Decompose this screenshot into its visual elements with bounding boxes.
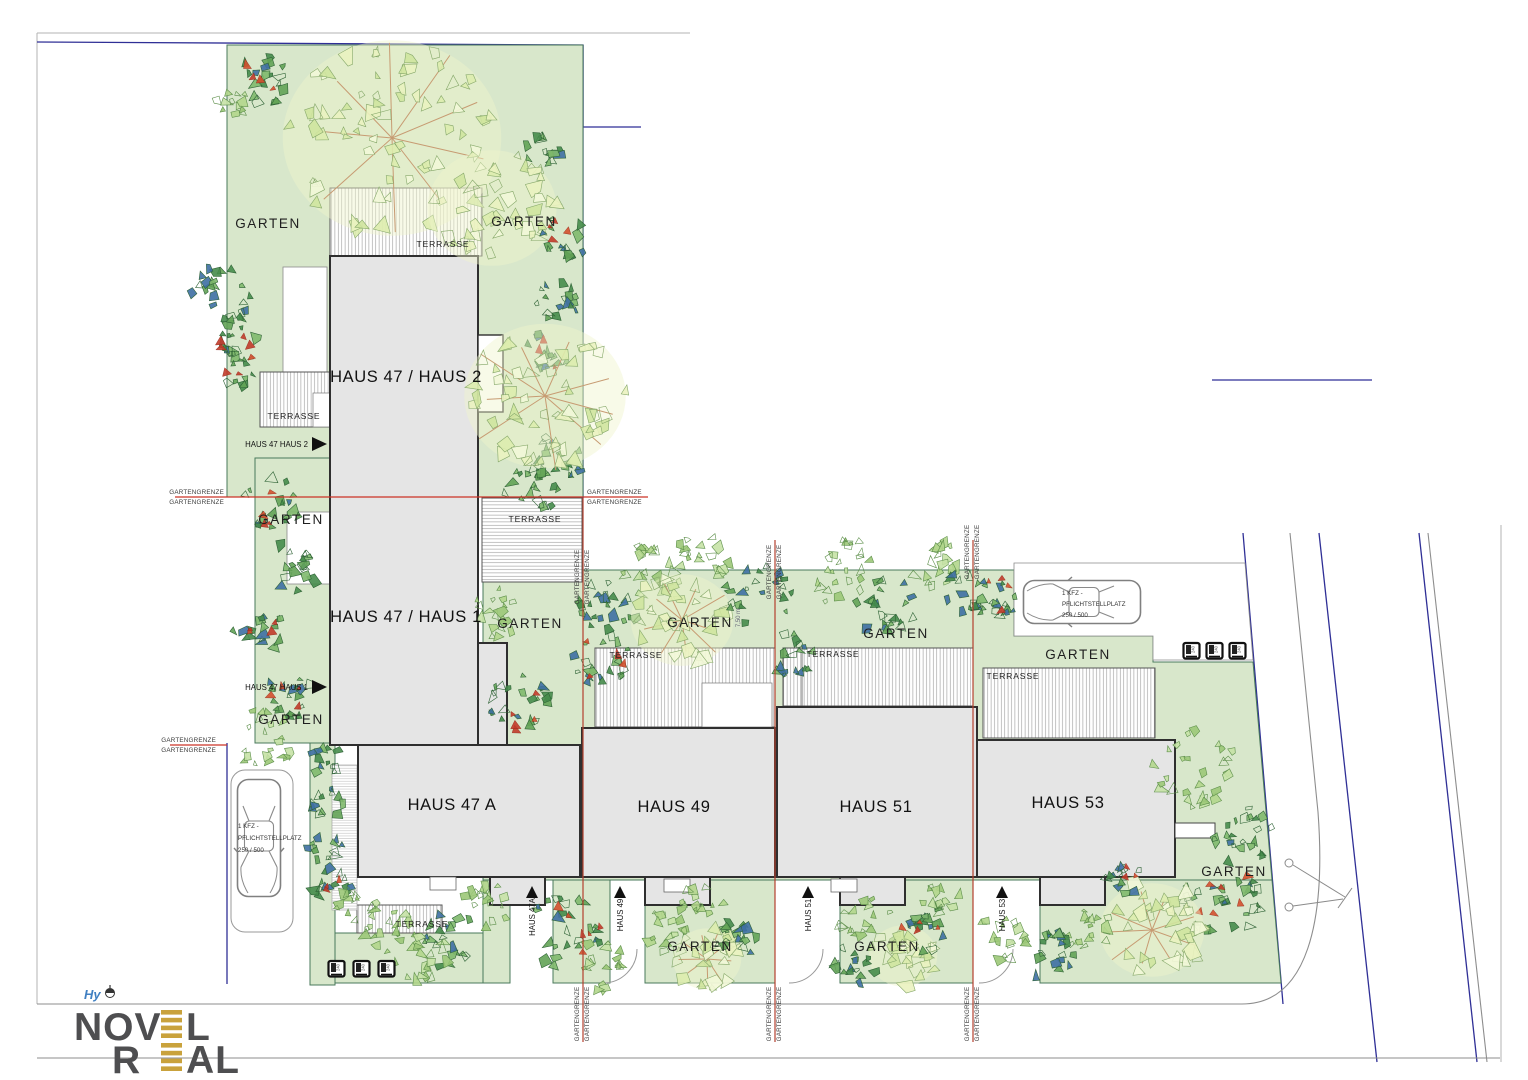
entrance-label: HAUS 49 [616,899,625,932]
svg-text:GARTENGRENZE: GARTENGRENZE [766,987,773,1042]
logo-gold-bars-icon [161,1010,182,1071]
site-plan-svg: 240 [0,0,1528,1080]
garten-label: GARTEN [258,712,324,727]
building-label: HAUS 47 / HAUS 1 [330,608,482,626]
garden-parcel [255,458,330,743]
svg-text:GARTENGRENZE: GARTENGRENZE [964,525,971,580]
building-label: HAUS 51 [840,798,913,816]
garten-label: GARTEN [497,616,563,631]
svg-text:GARTENGRENZE: GARTENGRENZE [766,545,773,600]
entrance-arrow-icon [802,886,814,898]
svg-text:GARTENGRENZE: GARTENGRENZE [964,987,971,1042]
building-label: HAUS 49 [638,798,711,816]
building-label: HAUS 47 A [408,796,497,814]
building-haus-47 [330,256,478,745]
svg-text:GARTENGRENZE: GARTENGRENZE [584,550,591,605]
dimension-label: 7,50 m [736,609,742,627]
garten-label: GARTEN [491,214,557,229]
logo-text-real: R [112,1039,141,1080]
garten-label: GARTEN [1045,647,1111,662]
entrance-label: HAUS 47 HAUS 2 [245,440,308,449]
svg-text:GARTENGRENZE: GARTENGRENZE [169,499,224,506]
terrasse-label: TERRASSE [986,671,1039,681]
hydrant-label: Hy [84,987,101,1002]
side-terrace [1175,823,1215,838]
terrasse-label: TERRASSE [416,239,469,249]
svg-text:GARTENGRENZE: GARTENGRENZE [776,545,783,600]
terrasse-label: TERRASSE [508,514,561,524]
entrance-label: HAUS 53 [998,899,1007,932]
svg-text:GARTENGRENZE: GARTENGRENZE [587,499,642,506]
svg-text:GARTENGRENZE: GARTENGRENZE [974,987,981,1042]
svg-text:GARTENGRENZE: GARTENGRENZE [574,987,581,1042]
terrasse-label: TERRASSE [395,919,448,929]
svg-text:GARTENGRENZE: GARTENGRENZE [574,550,581,605]
entrance-label: HAUS 47 HAUS 1 [245,683,308,692]
svg-text:1 KFZ -: 1 KFZ - [238,823,259,830]
svg-text:1 KFZ -: 1 KFZ - [1062,590,1083,597]
svg-text:GARTENGRENZE: GARTENGRENZE [974,525,981,580]
entrance-arrow-icon [614,886,626,898]
entrance-label: HAUS 47A [528,897,537,936]
svg-text:GARTENGRENZE: GARTENGRENZE [584,987,591,1042]
door-step [831,879,857,892]
garten-label: GARTEN [1201,864,1267,879]
svg-text:GARTENGRENZE: GARTENGRENZE [169,489,224,496]
entrance-arrow-icon [996,886,1008,898]
svg-text:250 / 500: 250 / 500 [1062,612,1088,619]
svg-text:GARTENGRENZE: GARTENGRENZE [776,987,783,1042]
building-label: HAUS 53 [1032,794,1105,812]
building-label: HAUS 47 / HAUS 2 [330,368,482,386]
entrance-label: HAUS 51 [804,899,813,932]
logo-text-real-al: AL [186,1039,240,1080]
garten-label: GARTEN [258,512,324,527]
garten-label: GARTEN [235,216,301,231]
garten-label: GARTEN [854,939,920,954]
svg-text:PFLICHTSTELLPLATZ: PFLICHTSTELLPLATZ [1062,601,1126,608]
door-step [430,877,456,890]
terrasse-label: TERRASSE [267,411,320,421]
svg-text:250 / 500: 250 / 500 [238,847,264,854]
terrace [482,498,582,582]
building-haus-51 [777,707,977,877]
site-plan-page: 240 [0,0,1528,1080]
hydrant-marker: Hy [84,985,115,1002]
svg-text:GARTENGRENZE: GARTENGRENZE [161,737,216,744]
garten-label: GARTEN [667,939,733,954]
terrasse-label: TERRASSE [609,650,662,660]
garten-label: GARTEN [667,615,733,630]
garten-label: GARTEN [863,626,929,641]
terrasse-label: TERRASSE [806,649,859,659]
building-step [1040,877,1105,905]
svg-text:GARTENGRENZE: GARTENGRENZE [161,747,216,754]
novel-real-logo: NOV L R AL [74,1006,240,1080]
svg-text:GARTENGRENZE: GARTENGRENZE [587,489,642,496]
svg-text:PFLICHTSTELLPLATZ: PFLICHTSTELLPLATZ [238,835,302,842]
